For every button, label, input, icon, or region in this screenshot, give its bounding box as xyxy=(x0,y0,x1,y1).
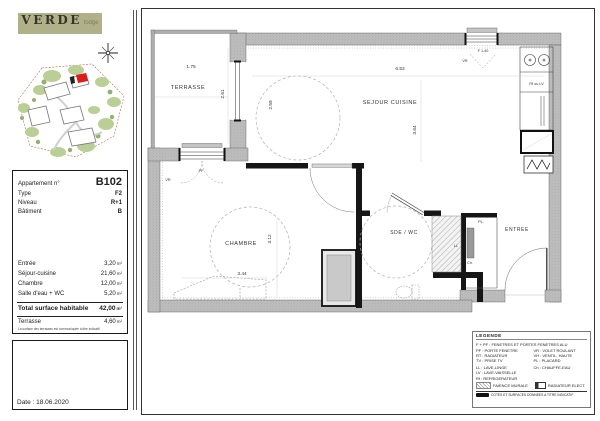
type-row: Type F2 xyxy=(18,191,122,197)
area-unit: m² xyxy=(117,319,122,324)
total-area-label: Total surface habitable xyxy=(18,305,88,312)
legend-symbol-label: RADIATEUR ELECT. xyxy=(548,383,586,388)
type-label: Type xyxy=(18,191,31,197)
area-unit: m² xyxy=(117,261,122,266)
area-row: Entrée 3,20 m² xyxy=(18,261,122,267)
building-label: Bâtiment xyxy=(18,209,42,215)
area-value: 5,20 xyxy=(104,291,116,297)
legend-title: LEGENDE xyxy=(476,333,587,340)
brand-logo: VERDE lodge xyxy=(18,13,102,34)
roller-shutter-tag-terrace: VR xyxy=(165,178,171,182)
area-row: Chambre 12,00 m² xyxy=(18,281,122,287)
area-label: Entrée xyxy=(18,261,36,267)
legend-logo-bar xyxy=(476,393,489,397)
fridge-dishwasher-tag: Rf ou LV xyxy=(529,82,544,86)
site-buildings xyxy=(28,74,96,146)
area-value: 12,00 xyxy=(101,281,116,287)
plan-sheet: VERDE lodge xyxy=(0,0,600,421)
technical-shaft xyxy=(521,131,553,153)
terrace-area-label: Terrasse xyxy=(18,319,41,325)
building-value: B xyxy=(118,209,122,215)
room-label-chambre: CHAMBRE xyxy=(225,241,257,247)
washing-machine-tag: LL xyxy=(454,244,458,248)
area-unit: m² xyxy=(117,281,122,286)
water-heater-tag: Ch. xyxy=(467,261,473,265)
roller-shutter-tag-top: VR xyxy=(462,59,468,63)
area-value: 3,20 xyxy=(104,261,116,267)
divider xyxy=(17,316,123,317)
total-area-value: 42,00 xyxy=(99,305,115,312)
legend-entry: TV : PRISE TV xyxy=(476,358,530,363)
legend-entry: PL : PLACARD xyxy=(534,358,588,363)
terrace-area-row: Terrasse 4,60 m² xyxy=(18,319,122,325)
french-door-tag: PF xyxy=(199,169,205,173)
plan-date: Date : 18.06.2020 xyxy=(17,399,69,406)
dim-terrasse-width: 1.75 xyxy=(186,64,196,70)
divider xyxy=(136,10,137,410)
room-label-entree: ENTREE xyxy=(505,227,529,233)
level-value: R+1 xyxy=(111,200,122,206)
area-label: Salle d'eau + WC xyxy=(18,291,64,297)
divider xyxy=(133,10,134,410)
dim-chambre-height: 3.12 xyxy=(267,234,273,244)
brand-name: VERDE xyxy=(21,13,81,27)
area-label: Séjour-cuisine xyxy=(18,271,56,277)
legend-note: COTES ET SURFACES DONNEES A TITRE INDICA… xyxy=(491,393,573,397)
apartment-number-label: Appartement n° xyxy=(18,181,60,187)
apartment-number-row: Appartement n° B102 xyxy=(18,176,122,188)
room-label-terrasse: TERRASSE xyxy=(171,85,205,91)
legend-line: F + PF : FENETRES ET PORTES FENETRES ALU xyxy=(476,342,587,347)
room-label-sejour: SEJOUR CUISINE xyxy=(363,100,418,106)
dim-terrasse-height: 2.61 xyxy=(220,89,226,99)
radiator-symbol xyxy=(524,156,553,173)
apartment-info-box: Appartement n° B102 Type F2 Niveau R+1 B… xyxy=(12,170,128,334)
kitchen-unit xyxy=(520,47,553,130)
technical-duct xyxy=(322,250,356,306)
radiator-swatch xyxy=(535,382,546,389)
area-label: Chambre xyxy=(18,281,43,287)
area-unit: m² xyxy=(117,291,122,296)
level-row: Niveau R+1 xyxy=(18,200,122,206)
level-label: Niveau xyxy=(18,200,37,206)
legend-entry: Rf : REFRIGERATEUR xyxy=(476,376,530,381)
dim-sejour-width: 6.53 xyxy=(395,66,405,72)
terrace-area-value: 4,60 xyxy=(104,319,116,325)
total-area-row: Total surface habitable 42,00 m² xyxy=(18,305,122,312)
water-heater xyxy=(467,228,474,258)
dim-sejour-left: 2.59 xyxy=(268,100,274,110)
room-label-sde-wc: SDE / WC xyxy=(390,230,418,236)
room-label-placard: PL. xyxy=(478,220,484,224)
divider xyxy=(17,302,123,303)
building-row: Bâtiment B xyxy=(18,209,122,215)
area-row: Séjour-cuisine 21,60 m² xyxy=(18,271,122,277)
dim-chambre-width: 3.44 xyxy=(237,271,247,277)
site-map xyxy=(14,60,130,164)
area-unit: m² xyxy=(117,306,123,311)
brand-suffix: lodge xyxy=(84,20,99,26)
area-unit: m² xyxy=(117,271,122,276)
area-value: 21,60 xyxy=(101,271,116,277)
tile-hatch-swatch xyxy=(476,382,491,389)
legend-symbol-label: FAIENCE MURALE xyxy=(493,383,528,388)
area-row: Salle d'eau + WC 5,20 m² xyxy=(18,291,122,297)
surface-note: La surface des terrasses est communiquée… xyxy=(18,327,124,331)
window-tag: F 1.40 xyxy=(478,49,489,53)
date-box: Date : 18.06.2020 xyxy=(12,340,128,410)
dim-sejour-height: 3.64 xyxy=(412,125,418,135)
legend-entry: Ch : CHAUFFE-EAU xyxy=(534,365,588,370)
legend-box: LEGENDE F + PF : FENETRES ET PORTES FENE… xyxy=(472,331,591,408)
apartment-number-value: B102 xyxy=(96,176,122,188)
type-value: F2 xyxy=(115,191,122,197)
